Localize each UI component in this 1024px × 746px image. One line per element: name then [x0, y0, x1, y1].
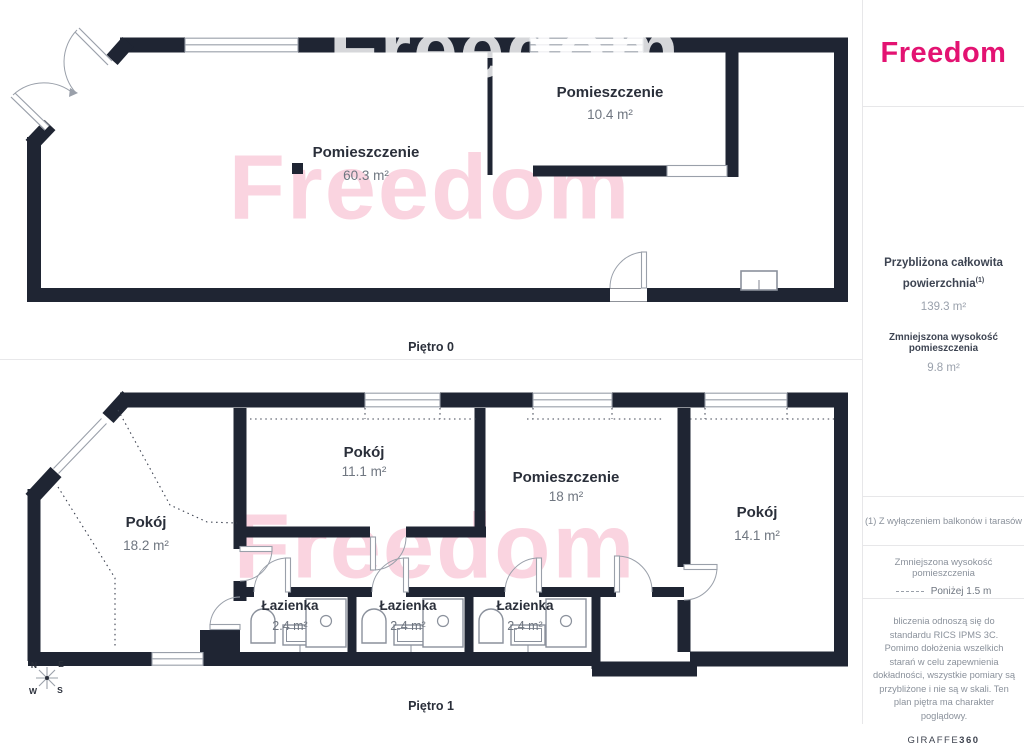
- floorplan-page: { "watermark": { "text": "Freedom" }, "f…: [0, 0, 1024, 724]
- floor0-double-door: [11, 28, 112, 130]
- floorplan-canvas: Freedom Freedom: [0, 0, 862, 724]
- legend-value: Poniżej 1.5 m: [931, 586, 992, 597]
- freedom-logo: Freedom: [881, 37, 1007, 70]
- bathroom-fixtures: [251, 599, 586, 652]
- disclaimer-text: bliczenia odnoszą się do standardu RICS …: [872, 615, 1016, 723]
- legend-title: Zmniejszona wysokość pomieszczenia: [863, 557, 1024, 579]
- compass-e: E: [58, 659, 64, 669]
- compass-w: W: [29, 686, 38, 696]
- floor0-bottom-door: [610, 252, 647, 302]
- brand-logo-section: Freedom: [863, 0, 1024, 107]
- floor0-radiator-fixture: [741, 271, 777, 290]
- legend-section: Zmniejszona wysokość pomieszczenia Poniż…: [863, 546, 1024, 599]
- floor0-plan: [0, 0, 862, 359]
- floor0-label-marker: [292, 163, 303, 174]
- total-area-label: Przybliżona całkowita powierzchnia(1): [874, 255, 1014, 293]
- floor0-passage-panel: [667, 166, 727, 177]
- compass-s: S: [57, 685, 63, 695]
- dashed-line-sample: [896, 591, 924, 592]
- footnote-section: (1) Z wyłączeniem balkonów i tarasów: [863, 497, 1024, 546]
- footnote-text: (1) Z wyłączeniem balkonów i tarasów: [865, 516, 1022, 526]
- compass-n: N: [31, 660, 37, 670]
- giraffe360-logo: GIRAFFE360: [872, 735, 1015, 746]
- area-stats-section: Przybliżona całkowita powierzchnia(1) 13…: [863, 107, 1024, 497]
- info-sidebar: Freedom Przybliżona całkowita powierzchn…: [862, 0, 1024, 724]
- reduced-height-value: 9.8 m²: [863, 362, 1024, 374]
- floor1-plan: N E W S: [0, 359, 862, 724]
- footnote-marker: (1): [976, 277, 985, 284]
- reduced-height-label: Zmniejszona wysokość pomieszczenia: [863, 332, 1024, 354]
- total-area-value: 139.3 m²: [863, 301, 1024, 313]
